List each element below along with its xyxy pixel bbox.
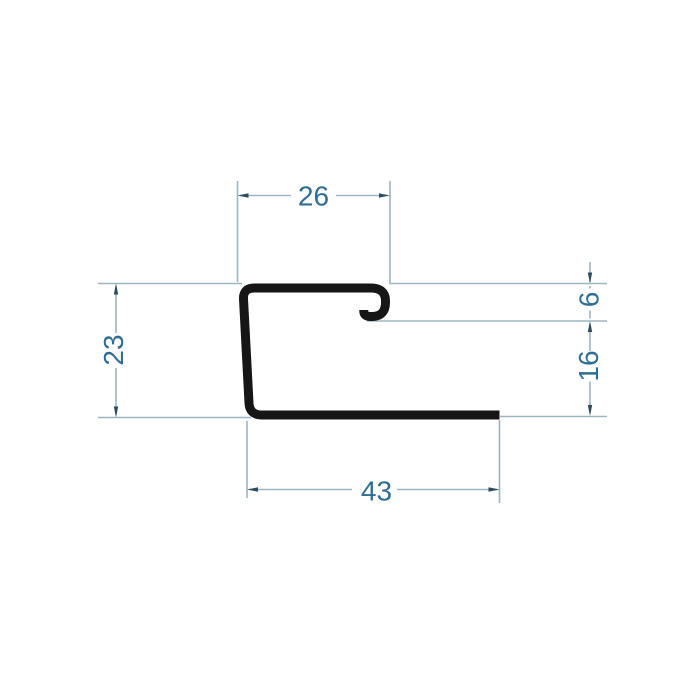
arrow-up-icon <box>114 284 118 295</box>
dimension-label-right-lower-height: 16 <box>573 350 604 381</box>
dimension-label-hook-depth: 6 <box>574 292 605 308</box>
arrow-down-icon <box>588 273 592 284</box>
dimension-label-top-width: 26 <box>298 181 329 212</box>
arrow-up-icon <box>588 321 592 332</box>
arrow-left-icon <box>238 193 249 197</box>
arrow-right-icon <box>379 193 390 197</box>
profile-dimension-drawing: 26 23 6 <box>0 0 700 700</box>
arrow-down-icon <box>114 407 118 418</box>
profile-outline <box>243 288 499 415</box>
dimension-top-width: 26 <box>238 181 391 285</box>
dimension-bottom-width: 43 <box>247 420 500 507</box>
dimension-label-bottom-width: 43 <box>361 476 392 507</box>
dimension-hook-depth-lines <box>367 262 607 321</box>
dimension-hook-depth-arrows <box>588 273 592 284</box>
dimension-hook-depth: 6 <box>367 262 607 321</box>
arrow-right-icon <box>489 487 500 491</box>
arrow-down-icon <box>588 405 592 416</box>
dimension-right-lower-height: 16 <box>500 321 607 417</box>
dimension-left-height: 23 <box>98 284 251 418</box>
dimension-label-left-height: 23 <box>98 334 129 365</box>
arrow-left-icon <box>247 487 258 491</box>
drawing-canvas: 26 23 6 <box>0 0 700 700</box>
